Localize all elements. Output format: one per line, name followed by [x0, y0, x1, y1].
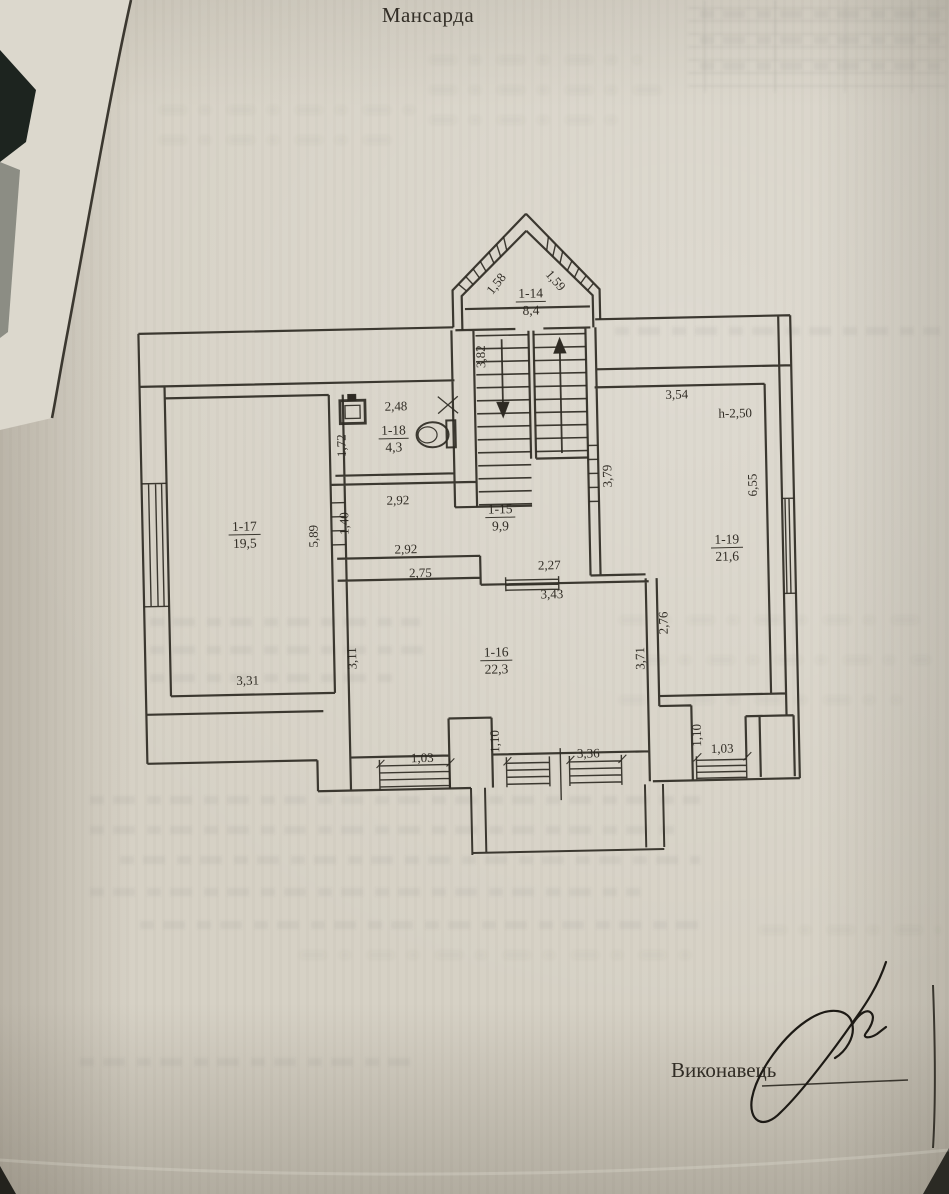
room-id: 1-16 [484, 644, 509, 660]
room-area: 21,6 [715, 548, 739, 563]
dim-pier-left: 1,10 [487, 730, 502, 753]
room-area: 22,3 [485, 661, 509, 676]
dim-r17-width-bottom: 3,31 [236, 672, 259, 687]
dim-r19-width-top: 3,54 [665, 386, 689, 401]
room-area: 9,9 [492, 518, 509, 533]
dim-r16-width-top: 3,43 [540, 586, 563, 601]
stairs-down-arrow [496, 339, 510, 417]
window-left-wall [142, 483, 170, 606]
signature [751, 962, 886, 1122]
bottom-curl-highlight [0, 1150, 949, 1174]
dim-hall-window: 2,27 [538, 557, 562, 572]
room-area: 8,4 [522, 302, 539, 317]
room-label-1-18: 1-18 4,3 [378, 422, 409, 455]
dim-wc-width: 2,48 [384, 398, 407, 413]
dim-r19-height-note: h-2,50 [718, 405, 752, 421]
window-hatches [137, 230, 800, 795]
balcony-walls [471, 784, 664, 855]
room-label-1-14: 1-14 8,4 [515, 285, 546, 318]
stairs-up-arrow [554, 338, 568, 453]
dim-bay-window-left: 1,58 [483, 270, 509, 297]
dim-r16-depth-right: 3,71 [632, 647, 647, 670]
dim-step-width: 2,75 [409, 565, 432, 580]
under-sheet [0, 0, 131, 430]
dim-wc-depth: 1,72 [334, 434, 349, 457]
dim-r19-depth-right: 6,55 [744, 474, 759, 497]
dim-window-right: 1,03 [711, 741, 734, 756]
room-id: 1-15 [488, 501, 513, 517]
room-area: 4,3 [385, 439, 402, 454]
dimension-center-tick [560, 748, 561, 800]
dim-hall-width-top: 2,92 [386, 492, 409, 507]
dim-hall-door: 1,40 [336, 512, 351, 535]
dim-pier-right: 1,10 [689, 724, 704, 747]
dim-window-left: 1,03 [411, 750, 434, 765]
right-sheet-edge-line [933, 985, 935, 1148]
room-label-1-16: 1-16 22,3 [480, 644, 513, 677]
dim-window-center: 3,36 [577, 745, 601, 760]
dim-r19-door-wall: 3,79 [599, 465, 614, 488]
bottom-right-corner [923, 1148, 949, 1194]
room-id: 1-17 [232, 518, 257, 534]
dim-bay-window-right: 1,59 [543, 267, 569, 294]
room-label-1-17: 1-17 19,5 [228, 518, 261, 551]
signature-block: Виконавець [671, 962, 908, 1122]
room-label-1-15: 1-15 9,9 [485, 501, 516, 534]
toilet-icon [416, 420, 456, 448]
floor-plan-scan: Мансарда [0, 0, 949, 1194]
dim-r17-inner-wall: 5,89 [305, 525, 320, 548]
dim-r16-depth-left: 3,11 [344, 647, 359, 670]
window-bottom-center [506, 755, 622, 787]
room-area: 19,5 [233, 535, 257, 550]
room-id: 1-18 [381, 422, 406, 438]
bottom-left-corner [0, 1166, 16, 1194]
floor-plan: 1,58 1,59 3,82 2,48 1,72 2,92 1,40 5,89 … [136, 208, 801, 862]
door-swing-mark [438, 396, 458, 413]
bleed-through-artifact [80, 0, 946, 1062]
page-title: Мансарда [382, 3, 475, 27]
dim-hall-width-bottom: 2,92 [394, 541, 417, 556]
window-bottom-right [696, 755, 746, 779]
scan-edge-artifacts [0, 0, 949, 1194]
room-id: 1-14 [518, 285, 543, 301]
outer-walls [138, 315, 800, 795]
signature-line [762, 1080, 908, 1086]
executor-label: Виконавець [671, 1058, 776, 1082]
dim-r19-depth-low: 2,76 [655, 611, 670, 635]
room-label-1-19: 1-19 21,6 [711, 531, 744, 564]
scanned-page: Мансарда [0, 0, 949, 1194]
room-id: 1-19 [714, 531, 739, 547]
dim-stair-flight: 3,82 [473, 345, 488, 368]
